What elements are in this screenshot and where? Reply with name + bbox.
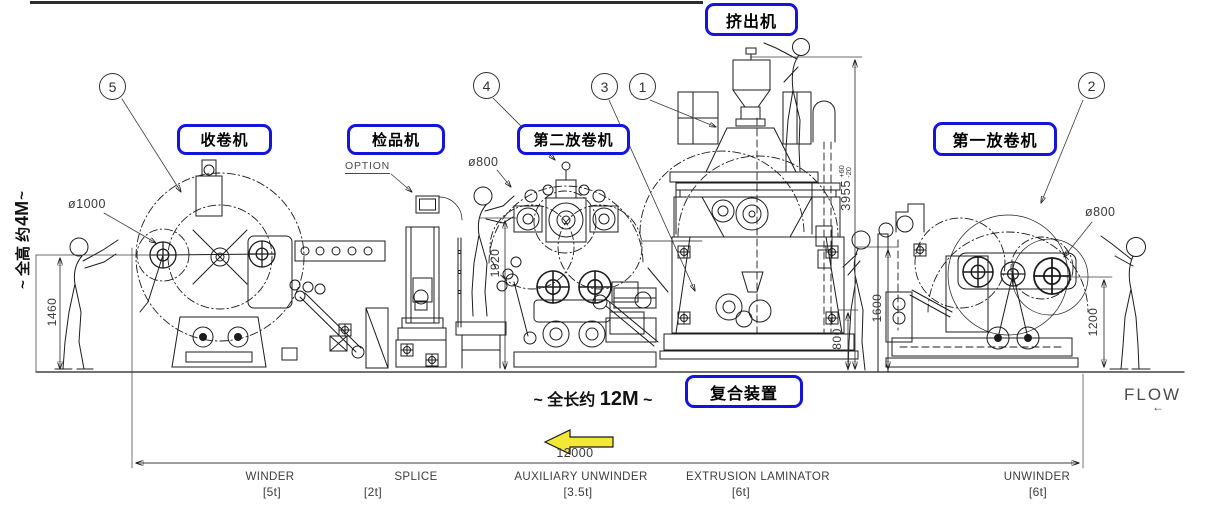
callout-winder: 收卷机 xyxy=(177,124,272,155)
dim-extruder-height-tolerance: +60 -20 xyxy=(838,165,853,178)
flow-left-arrow: ← xyxy=(1152,400,1164,414)
dim-extruder-height: 3955 +60 -20 xyxy=(836,133,854,243)
dim-laminator-height: 1600 xyxy=(870,263,884,353)
callout-first-unwinder: 第一放卷机 xyxy=(933,122,1057,156)
first-unwinder-drawing xyxy=(878,204,1088,372)
callout-inspection-label: 检品机 xyxy=(372,129,420,150)
dim-winder-roll-diameter: ø1000 xyxy=(68,197,106,211)
station-winder-capacity: [5t] xyxy=(263,485,281,499)
dim-extruder-height-value: 3955 xyxy=(838,180,853,211)
dim-aux-roll-diameter: ø800 xyxy=(468,155,499,169)
callout-second-unwinder-label: 第二放卷机 xyxy=(533,129,613,150)
balloon-4: 4 xyxy=(473,72,500,99)
callout-winder-label: 收卷机 xyxy=(200,129,248,150)
total-length-suffix: ~ xyxy=(643,392,652,409)
callout-inspection: 检品机 xyxy=(347,124,445,155)
winder-drawing xyxy=(136,160,388,368)
total-height-suffix: ~ xyxy=(14,191,31,200)
station-extrusion-laminator-capacity: [6t] xyxy=(732,485,750,499)
dim-nip-height: 800 xyxy=(830,294,844,384)
total-height-value: 4M xyxy=(12,201,33,226)
tolerance-minus: -20 xyxy=(845,165,853,178)
machine-layout-drawing: 挤出机 收卷机 检品机 第二放卷机 第一放卷机 复合装置 5 4 3 1 2 ø… xyxy=(0,0,1214,530)
balloon-2: 2 xyxy=(1078,72,1105,99)
total-height-prefix: ~ 全高 约 xyxy=(12,227,33,289)
total-length-note: ~ 全长约 12M ~ xyxy=(508,386,678,411)
option-note: OPTION xyxy=(345,160,390,174)
callout-laminator-label: 复合装置 xyxy=(710,380,778,404)
balloon-3: 3 xyxy=(591,73,618,100)
top-border-rule xyxy=(30,1,703,4)
station-extrusion-laminator-name: EXTRUSION LAMINATOR xyxy=(686,471,830,483)
total-length-value: 12M xyxy=(600,388,639,410)
dim-total-length-mm: 12000 xyxy=(533,446,617,460)
balloon-5: 5 xyxy=(99,73,126,100)
dim-unwinder-roll-diameter: ø800 xyxy=(1085,205,1116,219)
station-unwinder-capacity: [6t] xyxy=(1029,485,1047,499)
callout-extruder: 挤出机 xyxy=(705,3,798,36)
station-aux-unwinder-capacity: [3.5t] xyxy=(563,485,592,499)
total-height-note: ~ 全高 约 4M ~ xyxy=(7,135,37,345)
callout-laminator: 复合装置 xyxy=(685,375,803,408)
dim-unwinder-height: 1200 xyxy=(1086,277,1100,367)
station-unwinder-name: UNWINDER xyxy=(1004,471,1070,483)
station-splice-name: SPLICE xyxy=(394,471,437,483)
station-splice-capacity: [2t] xyxy=(364,485,382,499)
callout-extruder-label: 挤出机 xyxy=(726,8,777,32)
station-winder-name: WINDER xyxy=(245,471,294,483)
callout-first-unwinder-label: 第一放卷机 xyxy=(952,127,1037,151)
dim-winder-height: 1460 xyxy=(45,267,59,357)
total-length-prefix: ~ 全长约 xyxy=(534,392,596,409)
balloon-1: 1 xyxy=(629,73,656,100)
auxiliary-unwinder-drawing xyxy=(489,162,658,367)
callout-second-unwinder: 第二放卷机 xyxy=(517,124,630,155)
station-aux-unwinder-name: AUXILIARY UNWINDER xyxy=(514,471,647,483)
dim-aux-height: 1920 xyxy=(488,218,502,308)
